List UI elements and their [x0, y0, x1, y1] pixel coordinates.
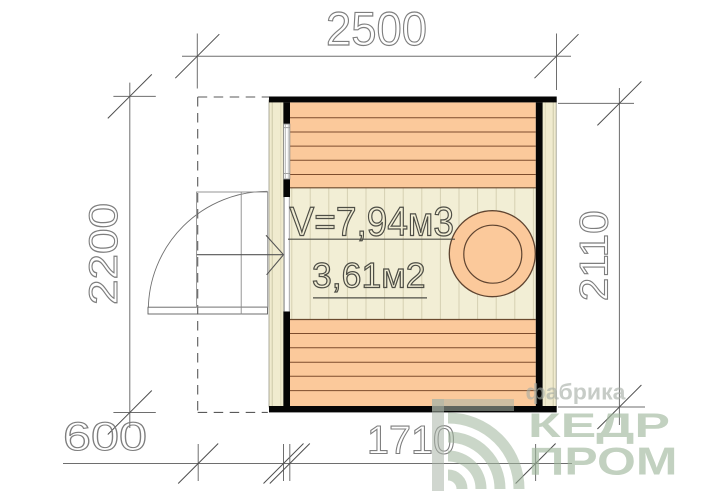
svg-text:600: 600	[63, 415, 147, 459]
svg-text:фабрика: фабрика	[526, 380, 627, 405]
svg-text:2200: 2200	[82, 203, 126, 305]
svg-text:2500: 2500	[326, 2, 427, 55]
svg-text:V=7,94м3: V=7,94м3	[290, 199, 455, 245]
svg-text:3,61м2: 3,61м2	[312, 257, 426, 296]
svg-text:2110: 2110	[573, 210, 617, 301]
svg-text:ПРОМ: ПРОМ	[529, 441, 678, 484]
svg-text:КЕДР: КЕДР	[528, 407, 670, 445]
